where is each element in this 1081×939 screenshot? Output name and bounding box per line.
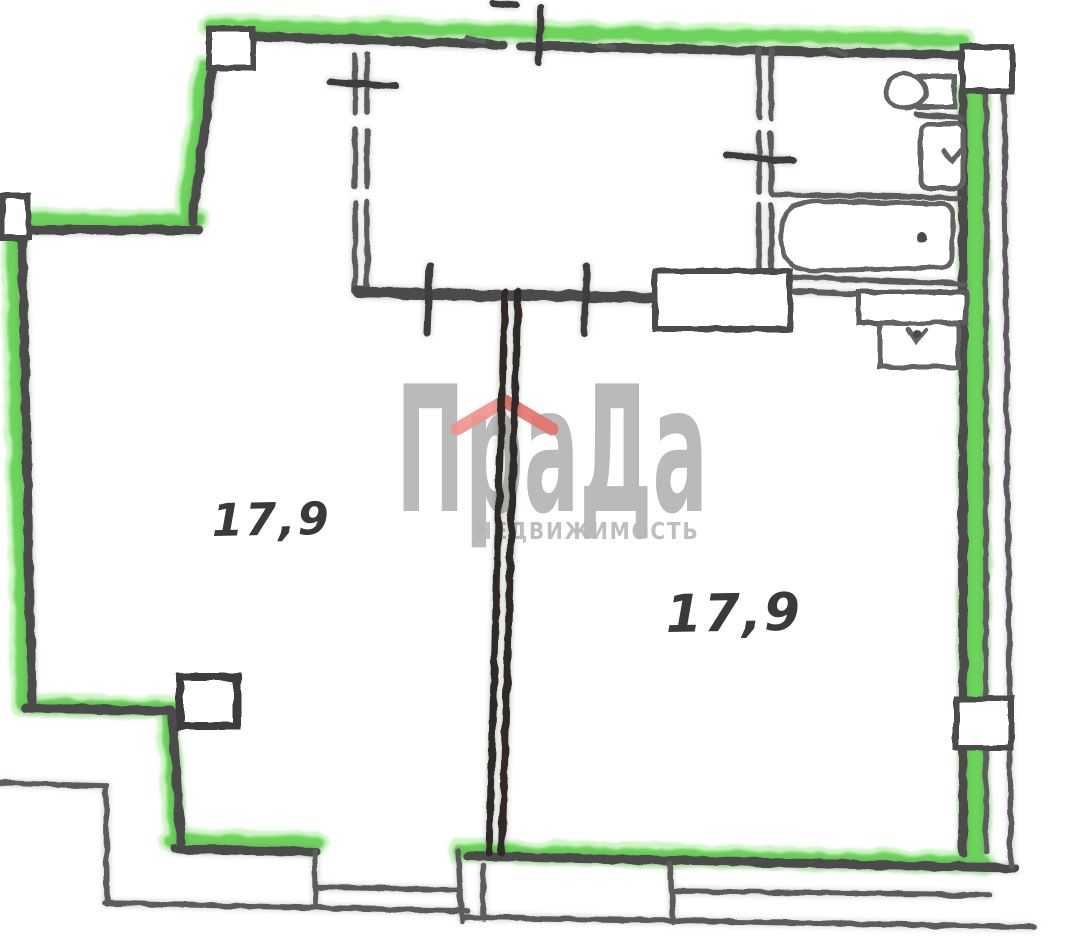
bathtub-icon — [781, 201, 953, 271]
left-wall-block — [2, 196, 28, 238]
right-wall-block — [956, 699, 1011, 748]
room-right-area-label: 17,9 — [665, 583, 802, 645]
top-left-wall-block — [209, 29, 253, 68]
watermark: ПраДа НЕДВИЖИМОСТЬ — [396, 350, 708, 554]
floor-plan: ПраДа НЕДВИЖИМОСТЬ — [0, 0, 1081, 939]
bathtub-drain-dot — [917, 233, 927, 243]
washbasin-icon — [921, 124, 963, 188]
column-block — [180, 677, 237, 726]
duct-box — [858, 292, 966, 323]
entry-door-block — [655, 271, 790, 329]
floor-plan-svg: ПраДа НЕДВИЖИМОСТЬ — [0, 0, 1081, 939]
sink-icon — [880, 323, 958, 367]
toilet-icon — [886, 74, 954, 108]
room-left-area-label: 17,9 — [211, 492, 331, 547]
top-right-wall-block — [962, 47, 1012, 91]
